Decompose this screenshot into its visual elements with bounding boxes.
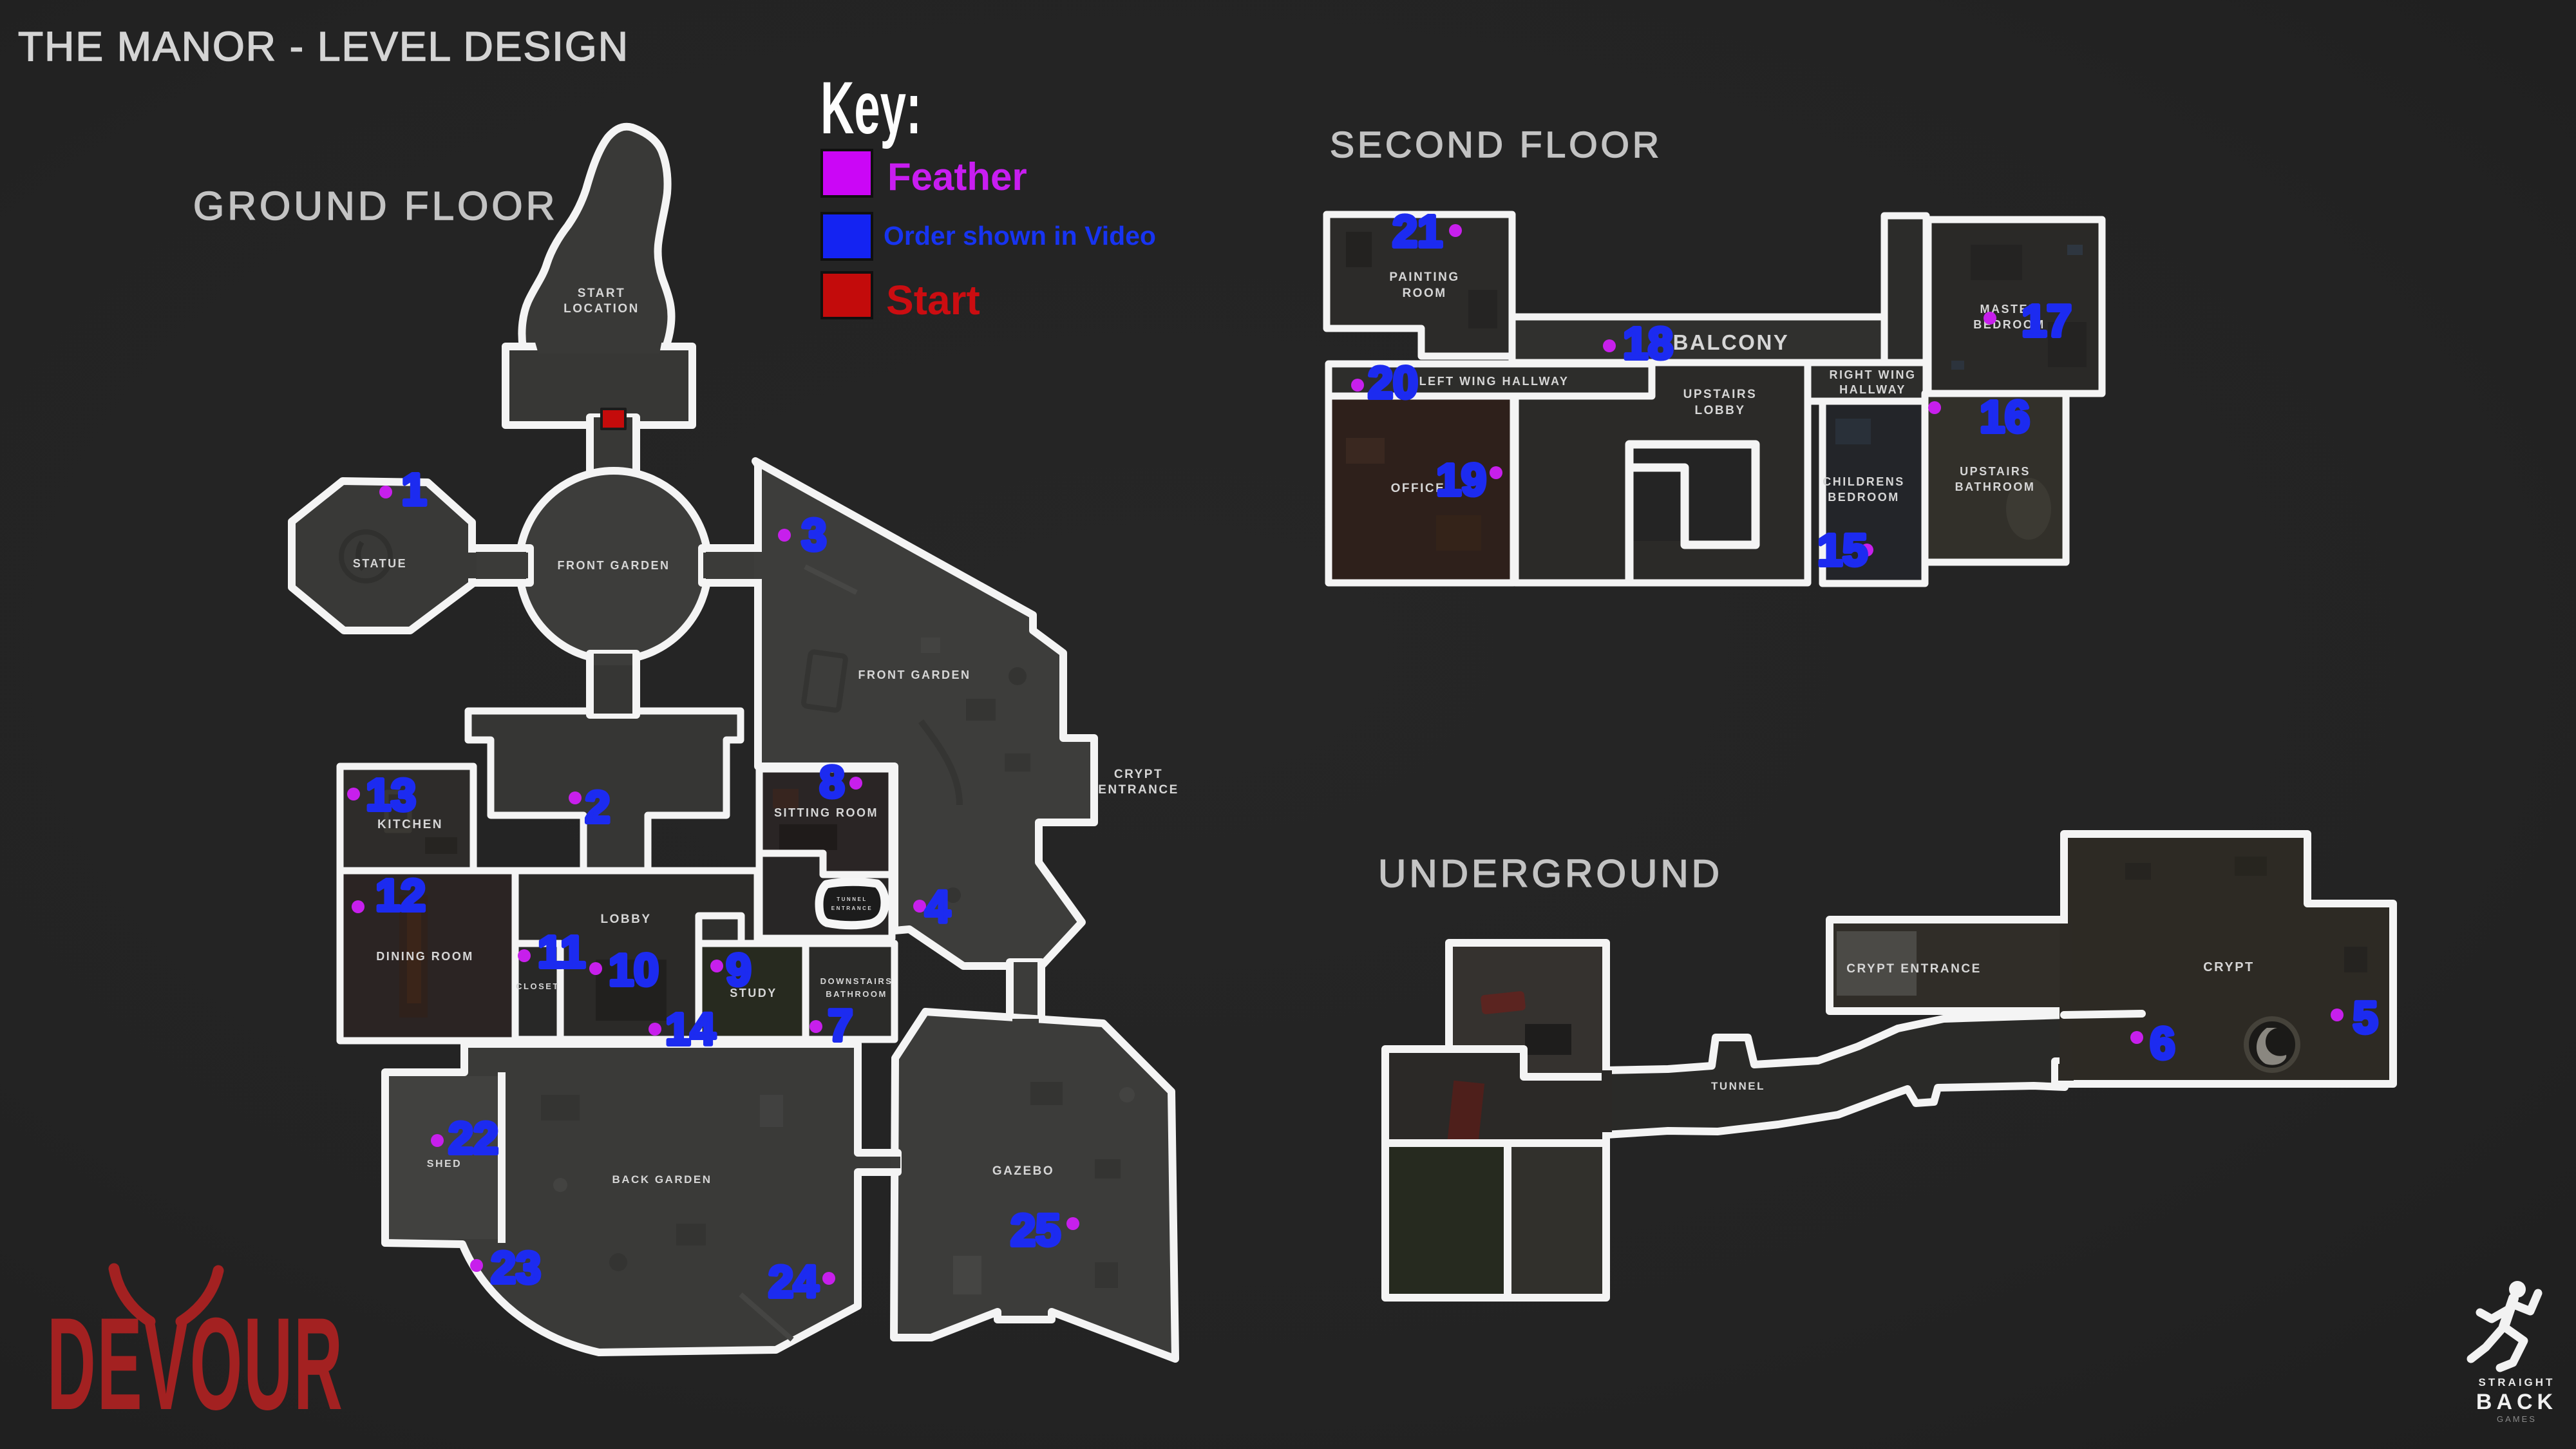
svg-text:TUNNEL: TUNNEL (837, 896, 867, 902)
svg-text:START: START (578, 287, 625, 300)
svg-text:SITTING ROOM: SITTING ROOM (774, 806, 878, 819)
svg-text:ENTRANCE: ENTRANCE (831, 905, 873, 911)
svg-text:THE MANOR - LEVEL DESIGN: THE MANOR - LEVEL DESIGN (18, 23, 629, 70)
svg-text:BATHROOM: BATHROOM (826, 989, 887, 999)
svg-text:CRYPT: CRYPT (1114, 768, 1163, 781)
svg-text:Feather: Feather (887, 155, 1027, 198)
svg-text:UNDERGROUND: UNDERGROUND (1378, 852, 1723, 895)
svg-text:18: 18 (1623, 318, 1673, 368)
svg-text:RIGHT WING: RIGHT WING (1830, 368, 1917, 381)
svg-text:LOBBY: LOBBY (1695, 404, 1746, 417)
svg-text:BALCONY: BALCONY (1673, 330, 1790, 354)
svg-text:11: 11 (538, 927, 585, 977)
svg-text:UPSTAIRS: UPSTAIRS (1683, 388, 1757, 401)
svg-text:TUNNEL: TUNNEL (1711, 1080, 1765, 1092)
svg-text:3: 3 (802, 509, 827, 560)
svg-text:8: 8 (820, 757, 845, 807)
svg-text:10: 10 (609, 945, 659, 995)
svg-text:STRAIGHT: STRAIGHT (2479, 1376, 2555, 1388)
svg-text:7: 7 (828, 1000, 853, 1050)
svg-text:20: 20 (1368, 357, 1418, 408)
svg-text:Order shown in Video: Order shown in Video (884, 221, 1156, 251)
svg-text:4: 4 (925, 882, 951, 932)
svg-text:HALLWAY: HALLWAY (1839, 383, 1906, 396)
svg-text:21: 21 (1392, 206, 1443, 256)
svg-text:13: 13 (366, 770, 416, 820)
svg-text:BEDROOM: BEDROOM (1828, 491, 1900, 504)
svg-text:LOCATION: LOCATION (563, 302, 639, 316)
svg-text:GAZEBO: GAZEBO (992, 1164, 1054, 1178)
svg-text:23: 23 (491, 1242, 541, 1293)
svg-text:Key:: Key: (820, 67, 922, 149)
svg-text:CHILDRENS: CHILDRENS (1823, 475, 1905, 488)
svg-text:DOWNSTAIRS: DOWNSTAIRS (820, 976, 893, 986)
svg-text:CLOSET: CLOSET (516, 981, 560, 991)
svg-text:5: 5 (2353, 992, 2378, 1043)
svg-text:PAINTING: PAINTING (1389, 270, 1459, 284)
svg-text:DINING ROOM: DINING ROOM (376, 950, 474, 963)
svg-text:KITCHEN: KITCHEN (377, 818, 443, 831)
svg-text:1: 1 (402, 464, 427, 515)
svg-text:Start: Start (886, 277, 980, 323)
svg-text:25: 25 (1010, 1205, 1061, 1255)
svg-text:LEFT WING HALLWAY: LEFT WING HALLWAY (1419, 375, 1569, 388)
svg-text:6: 6 (2150, 1018, 2175, 1068)
svg-text:19: 19 (1436, 455, 1486, 505)
svg-text:12: 12 (375, 870, 426, 920)
svg-text:15: 15 (1817, 525, 1868, 575)
svg-text:GROUND FLOOR: GROUND FLOOR (193, 184, 558, 229)
svg-text:ENTRANCE: ENTRANCE (1098, 783, 1179, 797)
svg-text:BACK: BACK (2476, 1390, 2557, 1414)
svg-text:BACK GARDEN: BACK GARDEN (612, 1173, 712, 1186)
svg-text:16: 16 (1980, 392, 2030, 442)
svg-text:CRYPT: CRYPT (2203, 960, 2255, 974)
svg-text:22: 22 (448, 1113, 498, 1163)
svg-text:BATHROOM: BATHROOM (1955, 480, 2036, 493)
svg-text:9: 9 (726, 945, 752, 995)
svg-text:FRONT GARDEN: FRONT GARDEN (558, 559, 670, 572)
svg-text:ROOM: ROOM (1402, 287, 1446, 300)
svg-text:14: 14 (665, 1004, 715, 1054)
svg-text:17: 17 (2022, 296, 2072, 346)
svg-text:STATUE: STATUE (353, 557, 407, 570)
svg-text:CRYPT ENTRANCE: CRYPT ENTRANCE (1846, 962, 1982, 976)
svg-text:FRONT GARDEN: FRONT GARDEN (858, 668, 971, 681)
svg-text:2: 2 (585, 782, 611, 832)
svg-text:GAMES: GAMES (2497, 1414, 2537, 1424)
svg-text:SECOND FLOOR: SECOND FLOOR (1330, 124, 1662, 166)
svg-text:LOBBY: LOBBY (601, 913, 652, 926)
svg-text:24: 24 (768, 1256, 819, 1307)
svg-text:UPSTAIRS: UPSTAIRS (1960, 465, 2031, 478)
